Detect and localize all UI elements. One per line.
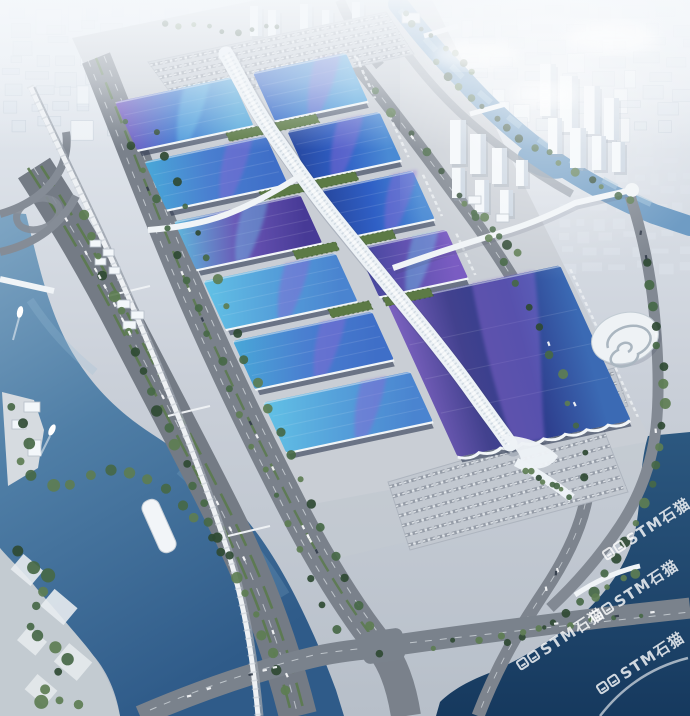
tree bbox=[298, 476, 304, 482]
tree bbox=[173, 177, 182, 186]
tree bbox=[285, 520, 292, 527]
cloud bbox=[566, 22, 658, 54]
tree bbox=[40, 684, 50, 694]
tree bbox=[504, 639, 511, 646]
tree bbox=[331, 552, 340, 561]
tree bbox=[169, 439, 181, 451]
tree bbox=[253, 611, 259, 617]
tree bbox=[528, 468, 535, 475]
tree bbox=[173, 251, 181, 259]
tree bbox=[600, 569, 608, 577]
tree bbox=[195, 304, 203, 312]
tree bbox=[263, 467, 269, 473]
tree bbox=[65, 480, 75, 490]
tree bbox=[542, 625, 546, 629]
low-rise-building bbox=[131, 311, 144, 319]
tree bbox=[562, 609, 571, 618]
tree bbox=[124, 467, 135, 478]
tree bbox=[105, 465, 116, 476]
tree bbox=[79, 210, 89, 220]
tree bbox=[512, 280, 519, 287]
tree bbox=[236, 411, 243, 418]
tree bbox=[639, 498, 650, 509]
cloud bbox=[433, 41, 517, 69]
tree bbox=[630, 569, 640, 579]
tree bbox=[32, 630, 43, 641]
tree bbox=[164, 225, 170, 231]
tree bbox=[233, 329, 242, 338]
aerial-rendering-exhibition-center: STM石猫 STM石猫 STM石猫 STM石猫 STM石猫 bbox=[0, 0, 690, 716]
tree bbox=[74, 700, 83, 709]
tree bbox=[653, 342, 660, 349]
tree bbox=[27, 561, 40, 574]
tree bbox=[248, 444, 254, 450]
car bbox=[555, 571, 558, 576]
tree bbox=[658, 422, 666, 430]
tree bbox=[213, 274, 223, 284]
tree bbox=[376, 650, 384, 658]
tree bbox=[161, 484, 171, 494]
tree bbox=[340, 574, 348, 582]
tree bbox=[95, 253, 101, 259]
tree bbox=[559, 487, 564, 492]
tree bbox=[226, 385, 233, 392]
low-rise-building bbox=[117, 300, 130, 308]
tree bbox=[498, 632, 505, 639]
tree bbox=[268, 648, 278, 658]
tree bbox=[354, 601, 363, 610]
tree bbox=[165, 423, 175, 433]
tree bbox=[316, 523, 325, 532]
cloud bbox=[511, 83, 579, 107]
car bbox=[654, 428, 657, 433]
tree bbox=[281, 686, 291, 696]
tree bbox=[61, 653, 73, 665]
tree bbox=[365, 621, 374, 630]
tree bbox=[218, 357, 227, 366]
tree bbox=[263, 404, 273, 414]
tree bbox=[86, 470, 96, 480]
tree bbox=[49, 641, 61, 653]
tree bbox=[566, 494, 572, 500]
tree bbox=[639, 614, 643, 618]
low-rise-building bbox=[103, 249, 114, 256]
tree bbox=[522, 468, 528, 474]
tree bbox=[475, 637, 482, 644]
intersection-plaza bbox=[360, 627, 406, 665]
tree bbox=[147, 387, 156, 396]
tree bbox=[223, 303, 229, 309]
tree bbox=[567, 622, 574, 629]
tree bbox=[253, 378, 263, 388]
tree bbox=[651, 461, 660, 470]
tree bbox=[189, 513, 199, 523]
tree bbox=[204, 518, 213, 527]
tree bbox=[658, 379, 668, 389]
tree bbox=[160, 152, 169, 161]
tree bbox=[649, 481, 656, 488]
tree bbox=[276, 428, 285, 437]
tree bbox=[307, 499, 316, 508]
tree bbox=[241, 590, 248, 597]
tree bbox=[17, 458, 25, 466]
tree bbox=[183, 277, 191, 285]
tree bbox=[633, 520, 639, 526]
tree bbox=[536, 323, 543, 330]
tree bbox=[47, 479, 60, 492]
tree bbox=[621, 575, 627, 581]
tree bbox=[87, 232, 96, 241]
low-rise-building bbox=[95, 258, 106, 265]
tree bbox=[27, 623, 35, 631]
tree bbox=[200, 499, 208, 507]
tree bbox=[41, 568, 55, 582]
tree bbox=[274, 493, 279, 498]
tree bbox=[573, 423, 579, 429]
tree bbox=[582, 450, 588, 456]
tree bbox=[540, 479, 545, 484]
tree bbox=[216, 548, 225, 557]
tree bbox=[619, 537, 630, 548]
tree bbox=[151, 405, 162, 416]
tree bbox=[34, 695, 48, 709]
tree bbox=[297, 546, 304, 553]
tree bbox=[7, 403, 15, 411]
tree bbox=[208, 534, 216, 542]
tree bbox=[520, 629, 526, 635]
tree bbox=[591, 593, 600, 602]
low-rise-building bbox=[24, 402, 40, 412]
tree bbox=[56, 697, 64, 705]
tree bbox=[225, 551, 233, 559]
tree bbox=[152, 194, 161, 203]
scene-canvas bbox=[0, 0, 690, 716]
tree bbox=[652, 322, 661, 331]
tree bbox=[660, 398, 671, 409]
tree bbox=[526, 304, 533, 311]
tree bbox=[188, 482, 196, 490]
tree bbox=[580, 473, 588, 481]
tree bbox=[565, 401, 571, 407]
tree bbox=[109, 291, 121, 303]
tree bbox=[256, 630, 266, 640]
tree bbox=[118, 307, 126, 315]
tree bbox=[183, 460, 191, 468]
tree bbox=[604, 584, 610, 590]
tree bbox=[655, 443, 663, 451]
tree bbox=[644, 280, 654, 290]
tree bbox=[18, 418, 28, 428]
tree bbox=[319, 602, 326, 609]
car bbox=[655, 333, 658, 338]
tree bbox=[558, 369, 568, 379]
tree bbox=[178, 500, 188, 510]
tree bbox=[545, 351, 554, 360]
tree bbox=[203, 330, 210, 337]
tree bbox=[25, 470, 36, 481]
tree bbox=[131, 347, 140, 356]
tree bbox=[140, 168, 146, 174]
tree bbox=[203, 254, 210, 261]
tree bbox=[431, 646, 436, 651]
tree bbox=[24, 438, 36, 450]
low-rise-building bbox=[109, 267, 120, 274]
tree bbox=[332, 625, 341, 634]
tree bbox=[54, 668, 62, 676]
tree bbox=[611, 553, 621, 563]
tree bbox=[648, 302, 658, 312]
tree bbox=[450, 638, 455, 643]
tree bbox=[239, 355, 248, 364]
tree bbox=[231, 572, 242, 583]
tree bbox=[195, 230, 201, 236]
tree bbox=[38, 587, 48, 597]
low-rise-building bbox=[123, 321, 136, 329]
tree bbox=[536, 625, 543, 632]
tree bbox=[576, 598, 584, 606]
low-rise-building bbox=[90, 240, 101, 247]
tree bbox=[307, 575, 314, 582]
tree bbox=[286, 450, 296, 460]
tree bbox=[32, 602, 40, 610]
tree bbox=[588, 618, 593, 623]
tree bbox=[140, 367, 148, 375]
tree bbox=[660, 362, 669, 371]
tree bbox=[182, 204, 188, 210]
tree bbox=[142, 474, 152, 484]
tree bbox=[12, 546, 23, 557]
